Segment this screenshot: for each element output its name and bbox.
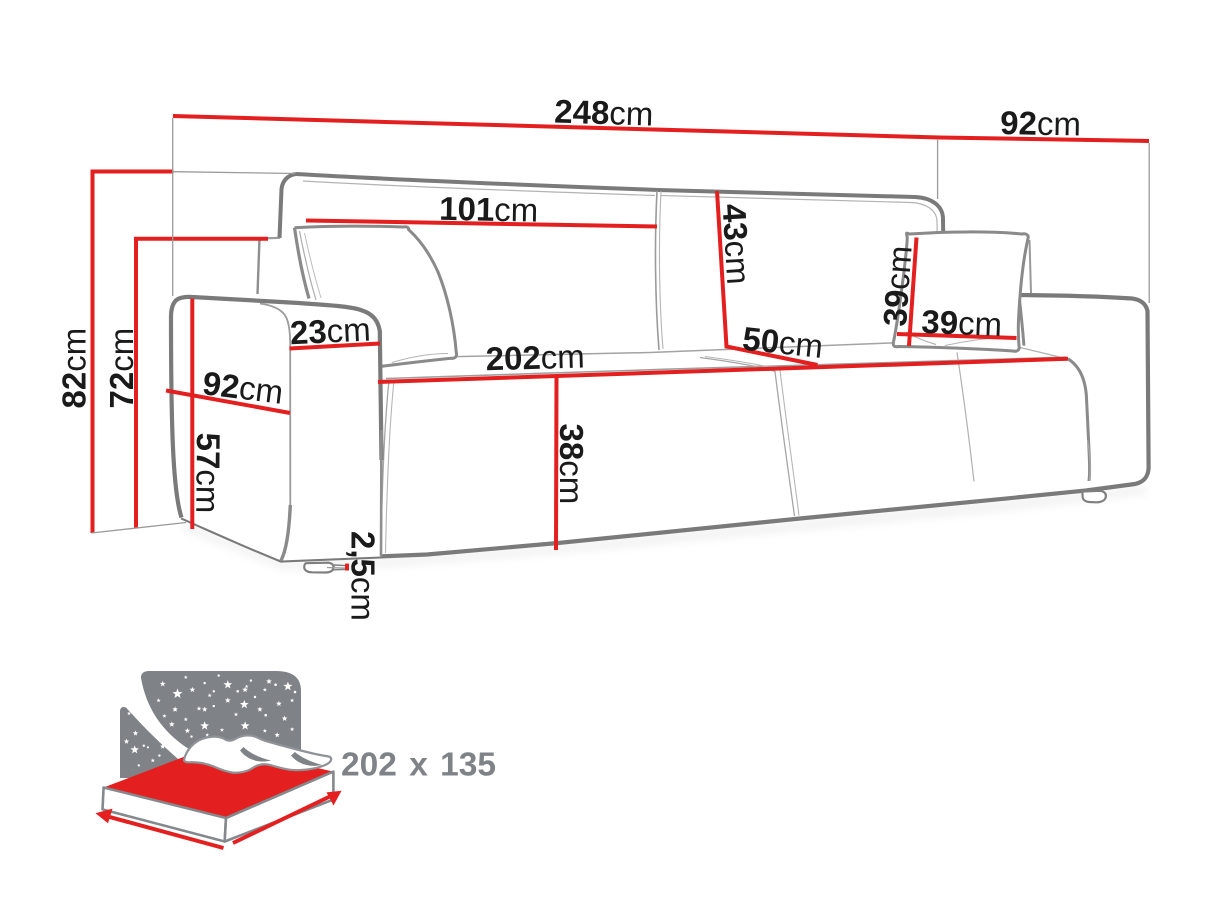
svg-text:2,5cm: 2,5cm	[345, 531, 382, 621]
svg-text:248cm: 248cm	[554, 93, 654, 133]
svg-text:23cm: 23cm	[289, 311, 371, 352]
svg-text:202 x 135: 202 x 135	[341, 747, 496, 784]
svg-text:92cm: 92cm	[1000, 104, 1081, 143]
svg-text:39cm: 39cm	[876, 244, 919, 327]
svg-text:202cm: 202cm	[485, 338, 585, 378]
svg-text:101cm: 101cm	[439, 190, 539, 229]
svg-text:38cm: 38cm	[553, 424, 590, 505]
svg-text:82cm: 82cm	[56, 328, 93, 409]
svg-text:72cm: 72cm	[103, 328, 140, 409]
svg-text:39cm: 39cm	[921, 303, 1003, 343]
svg-text:57cm: 57cm	[189, 432, 227, 513]
svg-text:43cm: 43cm	[716, 203, 758, 286]
